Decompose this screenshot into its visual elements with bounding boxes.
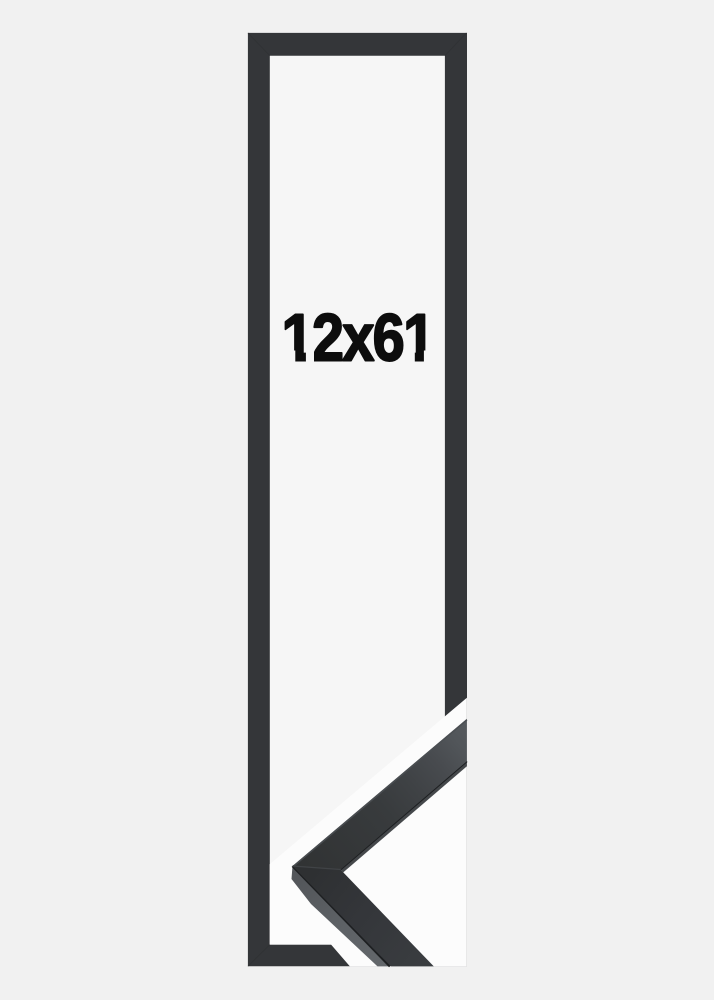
svg-text:12x61: 12x61 xyxy=(282,301,435,376)
